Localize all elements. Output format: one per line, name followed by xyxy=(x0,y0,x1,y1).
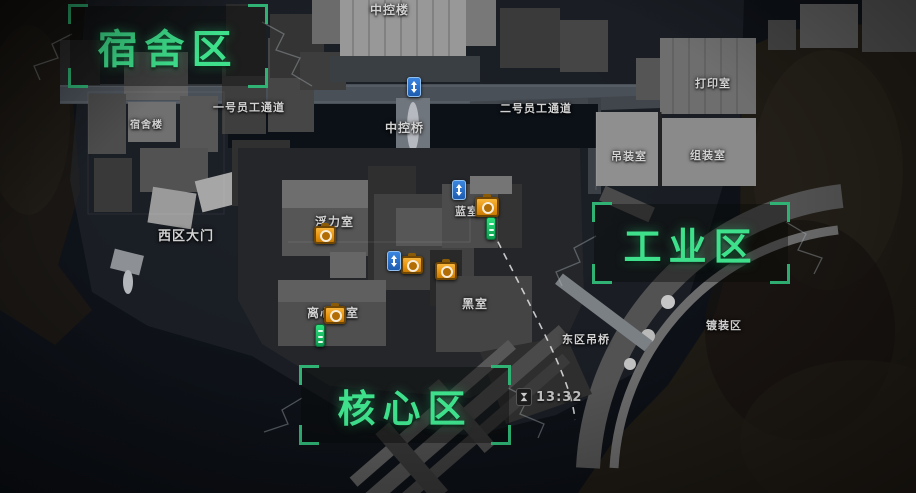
bracket-corner-icon xyxy=(248,68,268,88)
supply-crate-icon[interactable] xyxy=(324,306,346,324)
up-down-arrow-icon xyxy=(410,81,418,93)
label-assembly-room: 组装室 xyxy=(690,147,726,163)
supply-crate-icon[interactable] xyxy=(314,226,336,244)
label-central-control-building: 中控楼 xyxy=(370,1,409,18)
zone-title: 工业区 xyxy=(623,216,758,271)
game-map-screen: 宿舍区 工业区 核心区 中控楼 打印室 一号员工通道 二号员工通道 中控桥 宿舍… xyxy=(0,0,916,493)
label-west-gate: 西区大门 xyxy=(158,225,214,244)
zone-label-dormitory: 宿舍区 xyxy=(70,6,266,86)
supply-crate-icon[interactable] xyxy=(435,262,457,280)
up-down-arrow-icon xyxy=(390,255,398,267)
bracket-corner-icon xyxy=(592,264,612,284)
elevator-marker-icon[interactable] xyxy=(452,180,466,200)
bracket-corner-icon xyxy=(491,365,511,385)
elevator-marker-icon[interactable] xyxy=(407,77,421,97)
zipline-ladder-icon[interactable] xyxy=(486,217,496,240)
supply-crate-icon[interactable] xyxy=(401,256,423,274)
bracket-corner-icon xyxy=(68,4,88,24)
label-east-drawbridge: 东区吊桥 xyxy=(562,331,610,347)
bracket-corner-icon xyxy=(770,202,790,222)
hud-timer: 13:32 xyxy=(516,388,582,406)
elevator-marker-icon[interactable] xyxy=(387,251,401,271)
label-plating-area: 镀装区 xyxy=(706,317,742,333)
zone-label-industrial: 工业区 xyxy=(594,204,788,282)
up-down-arrow-icon xyxy=(455,184,463,196)
bracket-corner-icon xyxy=(299,425,319,445)
label-central-control-bridge: 中控桥 xyxy=(385,119,424,136)
supply-crate-icon[interactable] xyxy=(475,197,499,217)
zipline-ladder-icon[interactable] xyxy=(315,324,325,347)
zone-label-core: 核心区 xyxy=(301,367,509,443)
label-dormitory-building: 宿舍楼 xyxy=(130,116,163,131)
label-staff-passage-2: 二号员工通道 xyxy=(500,100,572,116)
label-hoisting-room: 吊装室 xyxy=(611,148,647,164)
bracket-corner-icon xyxy=(248,4,268,24)
label-black-room: 黑室 xyxy=(462,295,488,312)
hourglass-glyph xyxy=(519,391,529,403)
label-print-room: 打印室 xyxy=(695,75,731,91)
bracket-corner-icon xyxy=(592,202,612,222)
time-text: 13:32 xyxy=(536,390,582,405)
zone-title: 核心区 xyxy=(337,378,472,433)
bracket-corner-icon xyxy=(491,425,511,445)
bracket-corner-icon xyxy=(299,365,319,385)
bracket-corner-icon xyxy=(68,68,88,88)
hourglass-timer-icon xyxy=(516,388,532,406)
zone-title: 宿舍区 xyxy=(98,17,239,75)
bracket-corner-icon xyxy=(770,264,790,284)
label-staff-passage-1: 一号员工通道 xyxy=(213,99,285,115)
